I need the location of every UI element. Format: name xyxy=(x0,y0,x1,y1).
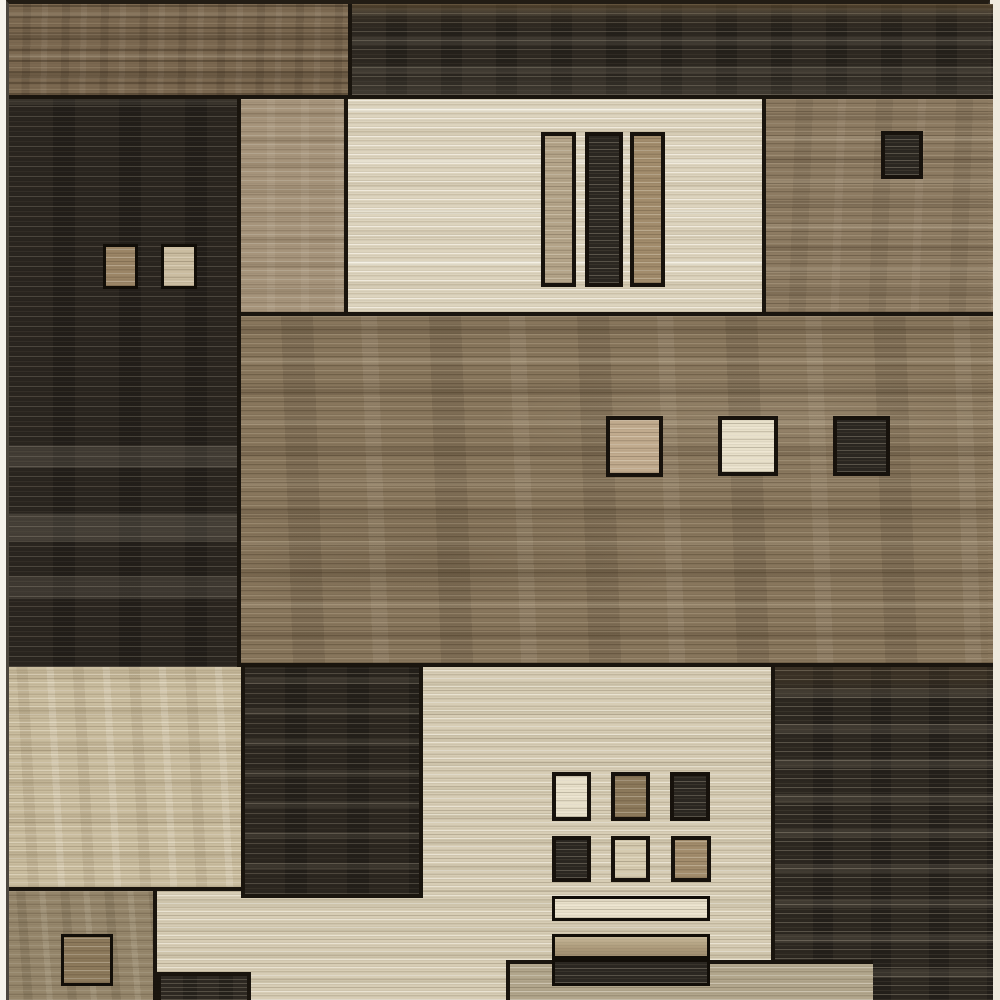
bar-bottom-charcoal xyxy=(552,959,710,986)
block-left-charcoal xyxy=(9,99,241,667)
grid-square-r2c1-charcoal xyxy=(552,836,591,882)
grid-square-r2c2-beige xyxy=(611,836,650,882)
block-middle-taupe xyxy=(241,316,993,667)
rug xyxy=(6,0,990,1000)
grid-square-r1c1-ivory xyxy=(552,772,591,821)
bar-bottom-tan xyxy=(552,934,710,959)
grid-square-r1c3-charcoal xyxy=(670,772,710,821)
square-middle-tan xyxy=(606,416,663,477)
block-taupe-column xyxy=(241,99,348,316)
bar-cream-panel-tan-2 xyxy=(630,132,665,287)
strip-charcoal-bottom xyxy=(157,972,251,1000)
block-bottom-left-beige xyxy=(9,667,241,891)
block-right-brown xyxy=(766,99,993,316)
block-bottom-charcoal-left xyxy=(241,667,423,898)
square-bottom-left-brown xyxy=(61,934,113,986)
block-top-right-charcoal xyxy=(348,4,993,99)
bar-cream-panel-tan-1 xyxy=(541,132,576,287)
block-bottom-beige-upper xyxy=(423,667,771,891)
block-bottom-right-charcoal xyxy=(771,667,993,1000)
square-middle-ivory xyxy=(718,416,778,476)
bar-bottom-ivory xyxy=(552,896,710,921)
bar-cream-panel-charcoal xyxy=(585,132,623,287)
square-left-panel-brown xyxy=(103,244,138,289)
block-top-left-brown xyxy=(9,4,348,99)
grid-square-r1c2-brown xyxy=(611,772,650,821)
square-middle-charcoal xyxy=(833,416,890,476)
grid-square-r2c3-brown xyxy=(671,836,711,882)
square-right-brown-charcoal xyxy=(881,131,923,179)
square-left-panel-cream xyxy=(161,244,197,289)
rug-product-photo xyxy=(0,0,1000,1000)
